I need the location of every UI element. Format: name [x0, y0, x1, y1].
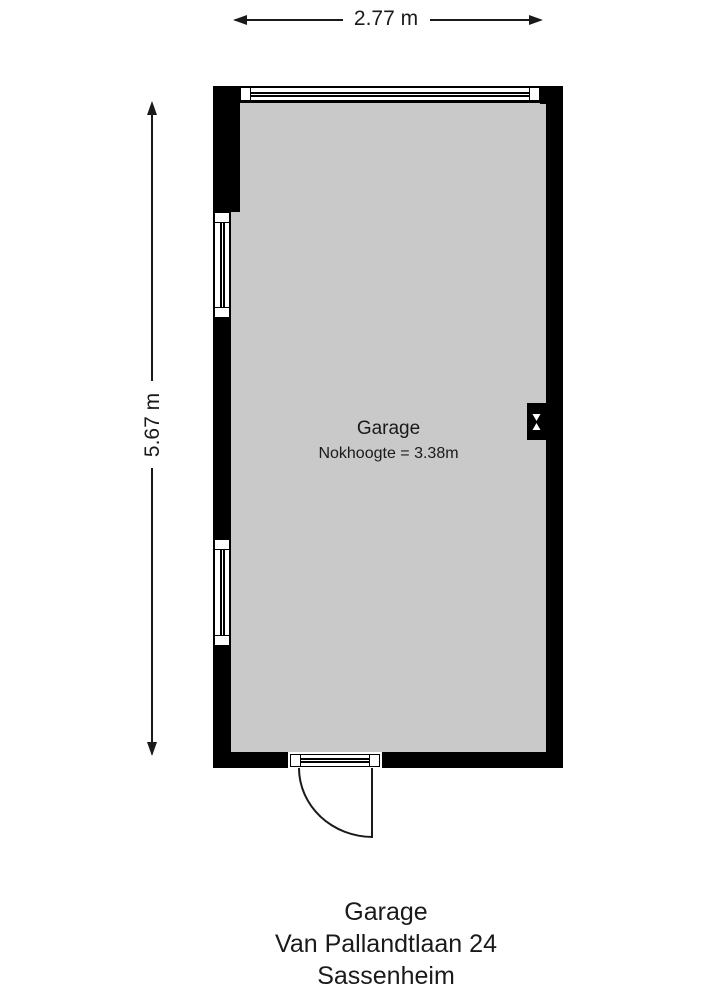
arrow-left-icon — [233, 15, 247, 25]
window-frame-cap — [529, 88, 539, 100]
arrow-down-icon — [147, 742, 157, 756]
wall-pier-top-right — [540, 86, 563, 104]
dimension-line-bottom-segment — [151, 468, 153, 754]
window-glazing — [220, 550, 225, 635]
door-leaf — [371, 768, 373, 838]
wall-pier-top-left — [213, 86, 240, 212]
height-dimension-label: 5.67 m — [142, 389, 164, 461]
window-frame-cap — [241, 88, 251, 100]
window-top — [240, 87, 540, 101]
dimension-line-right-segment — [430, 19, 538, 21]
floorplan-page: 2.77 m 5.67 m — [0, 0, 707, 1000]
caption-city: Sassenheim — [275, 960, 497, 992]
room-label: Garage Nokhoogte = 3.38m — [231, 417, 546, 464]
room-name: Garage — [231, 417, 546, 441]
window-frame-cap — [215, 540, 229, 550]
window-left-lower — [214, 539, 230, 646]
window-left-upper — [214, 212, 230, 318]
window-frame-cap — [215, 213, 229, 223]
room-ridge-height: Nokhoogte = 3.38m — [231, 444, 546, 464]
door-frame-cap — [291, 755, 301, 766]
width-dimension-label: 2.77 m — [350, 8, 422, 30]
caption: Garage Van Pallandtlaan 24 Sassenheim — [275, 896, 497, 992]
door-frame-cap — [369, 755, 379, 766]
door-swing-arc — [298, 768, 373, 838]
window-frame-cap — [215, 635, 229, 645]
caption-address: Van Pallandtlaan 24 — [275, 928, 497, 960]
door-threshold — [290, 754, 380, 767]
door-opening — [288, 752, 382, 768]
arrow-right-icon — [529, 15, 543, 25]
door-panel-lines — [301, 758, 369, 763]
caption-room: Garage — [275, 896, 497, 928]
arrow-up-icon — [147, 101, 157, 115]
window-frame-cap — [215, 307, 229, 317]
window-glazing — [251, 92, 529, 97]
dimension-line-left-segment — [235, 19, 343, 21]
window-glazing — [220, 223, 225, 307]
dimension-line-top-segment — [151, 104, 153, 381]
